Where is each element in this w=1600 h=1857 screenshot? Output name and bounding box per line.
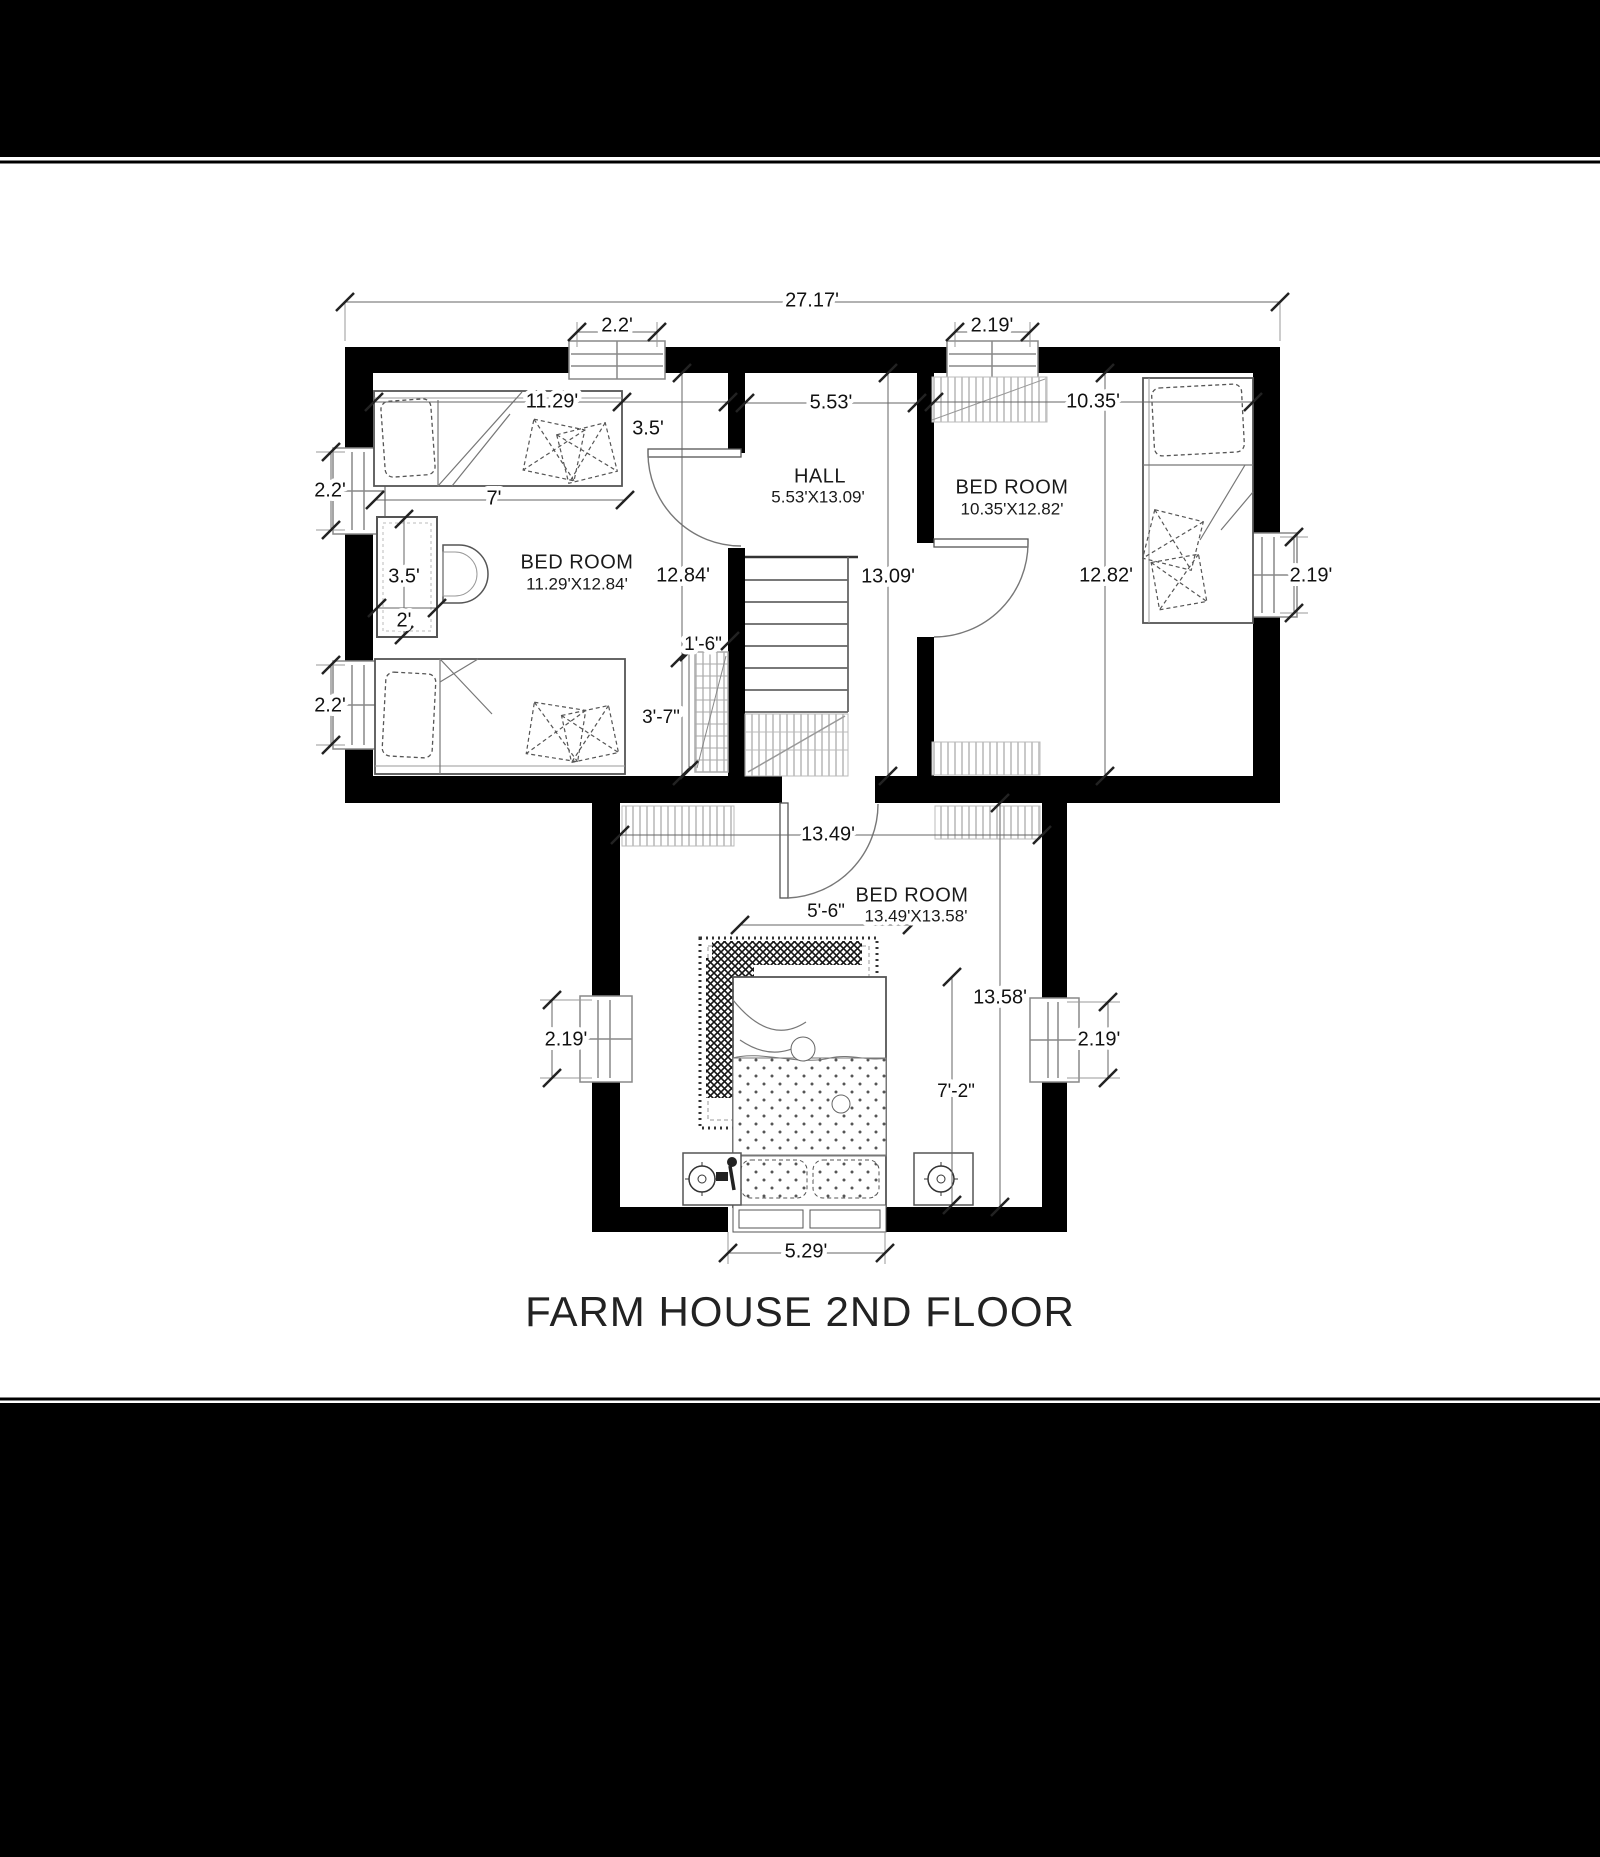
dim-stair-run: 3'-7"	[642, 707, 680, 728]
dim-top-window-right: 2.19'	[971, 314, 1014, 336]
dim-bottom-window-left: 2.19'	[545, 1028, 588, 1050]
dim-stair-width: 1'-6"	[684, 634, 722, 655]
door-left-bedroom	[648, 449, 741, 546]
drawing-title: FARM HOUSE 2ND FLOOR	[525, 1288, 1075, 1335]
bottom-black-bar	[0, 1403, 1600, 1857]
dim-bottom-window-right: 2.19'	[1078, 1028, 1121, 1050]
dim-bed-width: 7'-2"	[937, 1081, 975, 1102]
dim-wardrobe-width: 2'	[397, 609, 412, 631]
clock-icon	[716, 1172, 728, 1181]
top-black-bar	[0, 0, 1600, 157]
dim-hall-height: 13.09'	[861, 565, 915, 587]
dim-bedroom-right-height: 12.82'	[1079, 564, 1133, 586]
room-size-bedroom-left: 11.29'X12.84'	[526, 574, 628, 593]
nightstand-right	[914, 1153, 973, 1205]
dim-bedroom-bottom-height: 13.58'	[973, 986, 1027, 1008]
single-bed-top-left	[374, 391, 622, 486]
window-bottom-right	[1030, 998, 1079, 1082]
dim-bedroom-left-width: 11.29'	[526, 390, 578, 412]
room-size-hall: 5.53'X13.09'	[771, 487, 864, 506]
dim-rug-width: 5'-6"	[807, 901, 845, 922]
dim-top-window-left: 2.2'	[601, 314, 633, 336]
dim-hall-width: 5.53'	[810, 391, 853, 413]
room-label-bedroom-bottom: BED ROOM	[856, 884, 969, 906]
dim-bedroom-left-height: 12.84'	[656, 564, 710, 586]
stairs-narrow-flight	[695, 652, 728, 772]
room-label-bedroom-left: BED ROOM	[521, 551, 634, 573]
room-size-bedroom-bottom: 13.49'X13.58'	[865, 906, 968, 925]
wash-basin	[443, 545, 488, 603]
dim-side-window-lower: 2.2'	[314, 694, 346, 716]
dim-bedroom-bottom-width: 13.49'	[801, 823, 855, 845]
door-right-bedroom	[934, 539, 1028, 637]
lamp-icon	[689, 1166, 715, 1192]
window-top-left	[569, 341, 665, 379]
dim-headboard-width: 5.29'	[785, 1240, 828, 1262]
floor-plan-page: 27.17' 2.2' 2.19' 11.29' 3.5' 5.53' 10.3…	[0, 0, 1600, 1857]
room-label-bedroom-right: BED ROOM	[956, 476, 1069, 498]
dim-right-window: 2.19'	[1290, 564, 1333, 586]
dim-wardrobe-depth: 3.5'	[388, 565, 420, 587]
window-top-right	[947, 341, 1038, 379]
dim-bedroom-right-width: 10.35'	[1066, 390, 1120, 412]
double-bed	[733, 977, 886, 1232]
stairs-main	[745, 557, 858, 776]
single-bed-right	[1143, 378, 1253, 623]
dim-side-window-upper: 2.2'	[314, 479, 346, 501]
room-label-hall: HALL	[794, 465, 846, 487]
dim-door-offset: 3.5'	[632, 417, 664, 439]
dim-bed-length: 7'	[487, 487, 502, 509]
nightstand-left	[683, 1153, 741, 1205]
floor-plan-canvas: 27.17' 2.2' 2.19' 11.29' 3.5' 5.53' 10.3…	[0, 0, 1600, 1857]
window-bottom-left	[580, 996, 632, 1082]
single-bed-bottom-left	[375, 659, 625, 774]
lamp-icon	[928, 1166, 954, 1192]
dim-overall-width: 27.17'	[785, 289, 839, 311]
room-size-bedroom-right: 10.35'X12.82'	[961, 499, 1064, 518]
